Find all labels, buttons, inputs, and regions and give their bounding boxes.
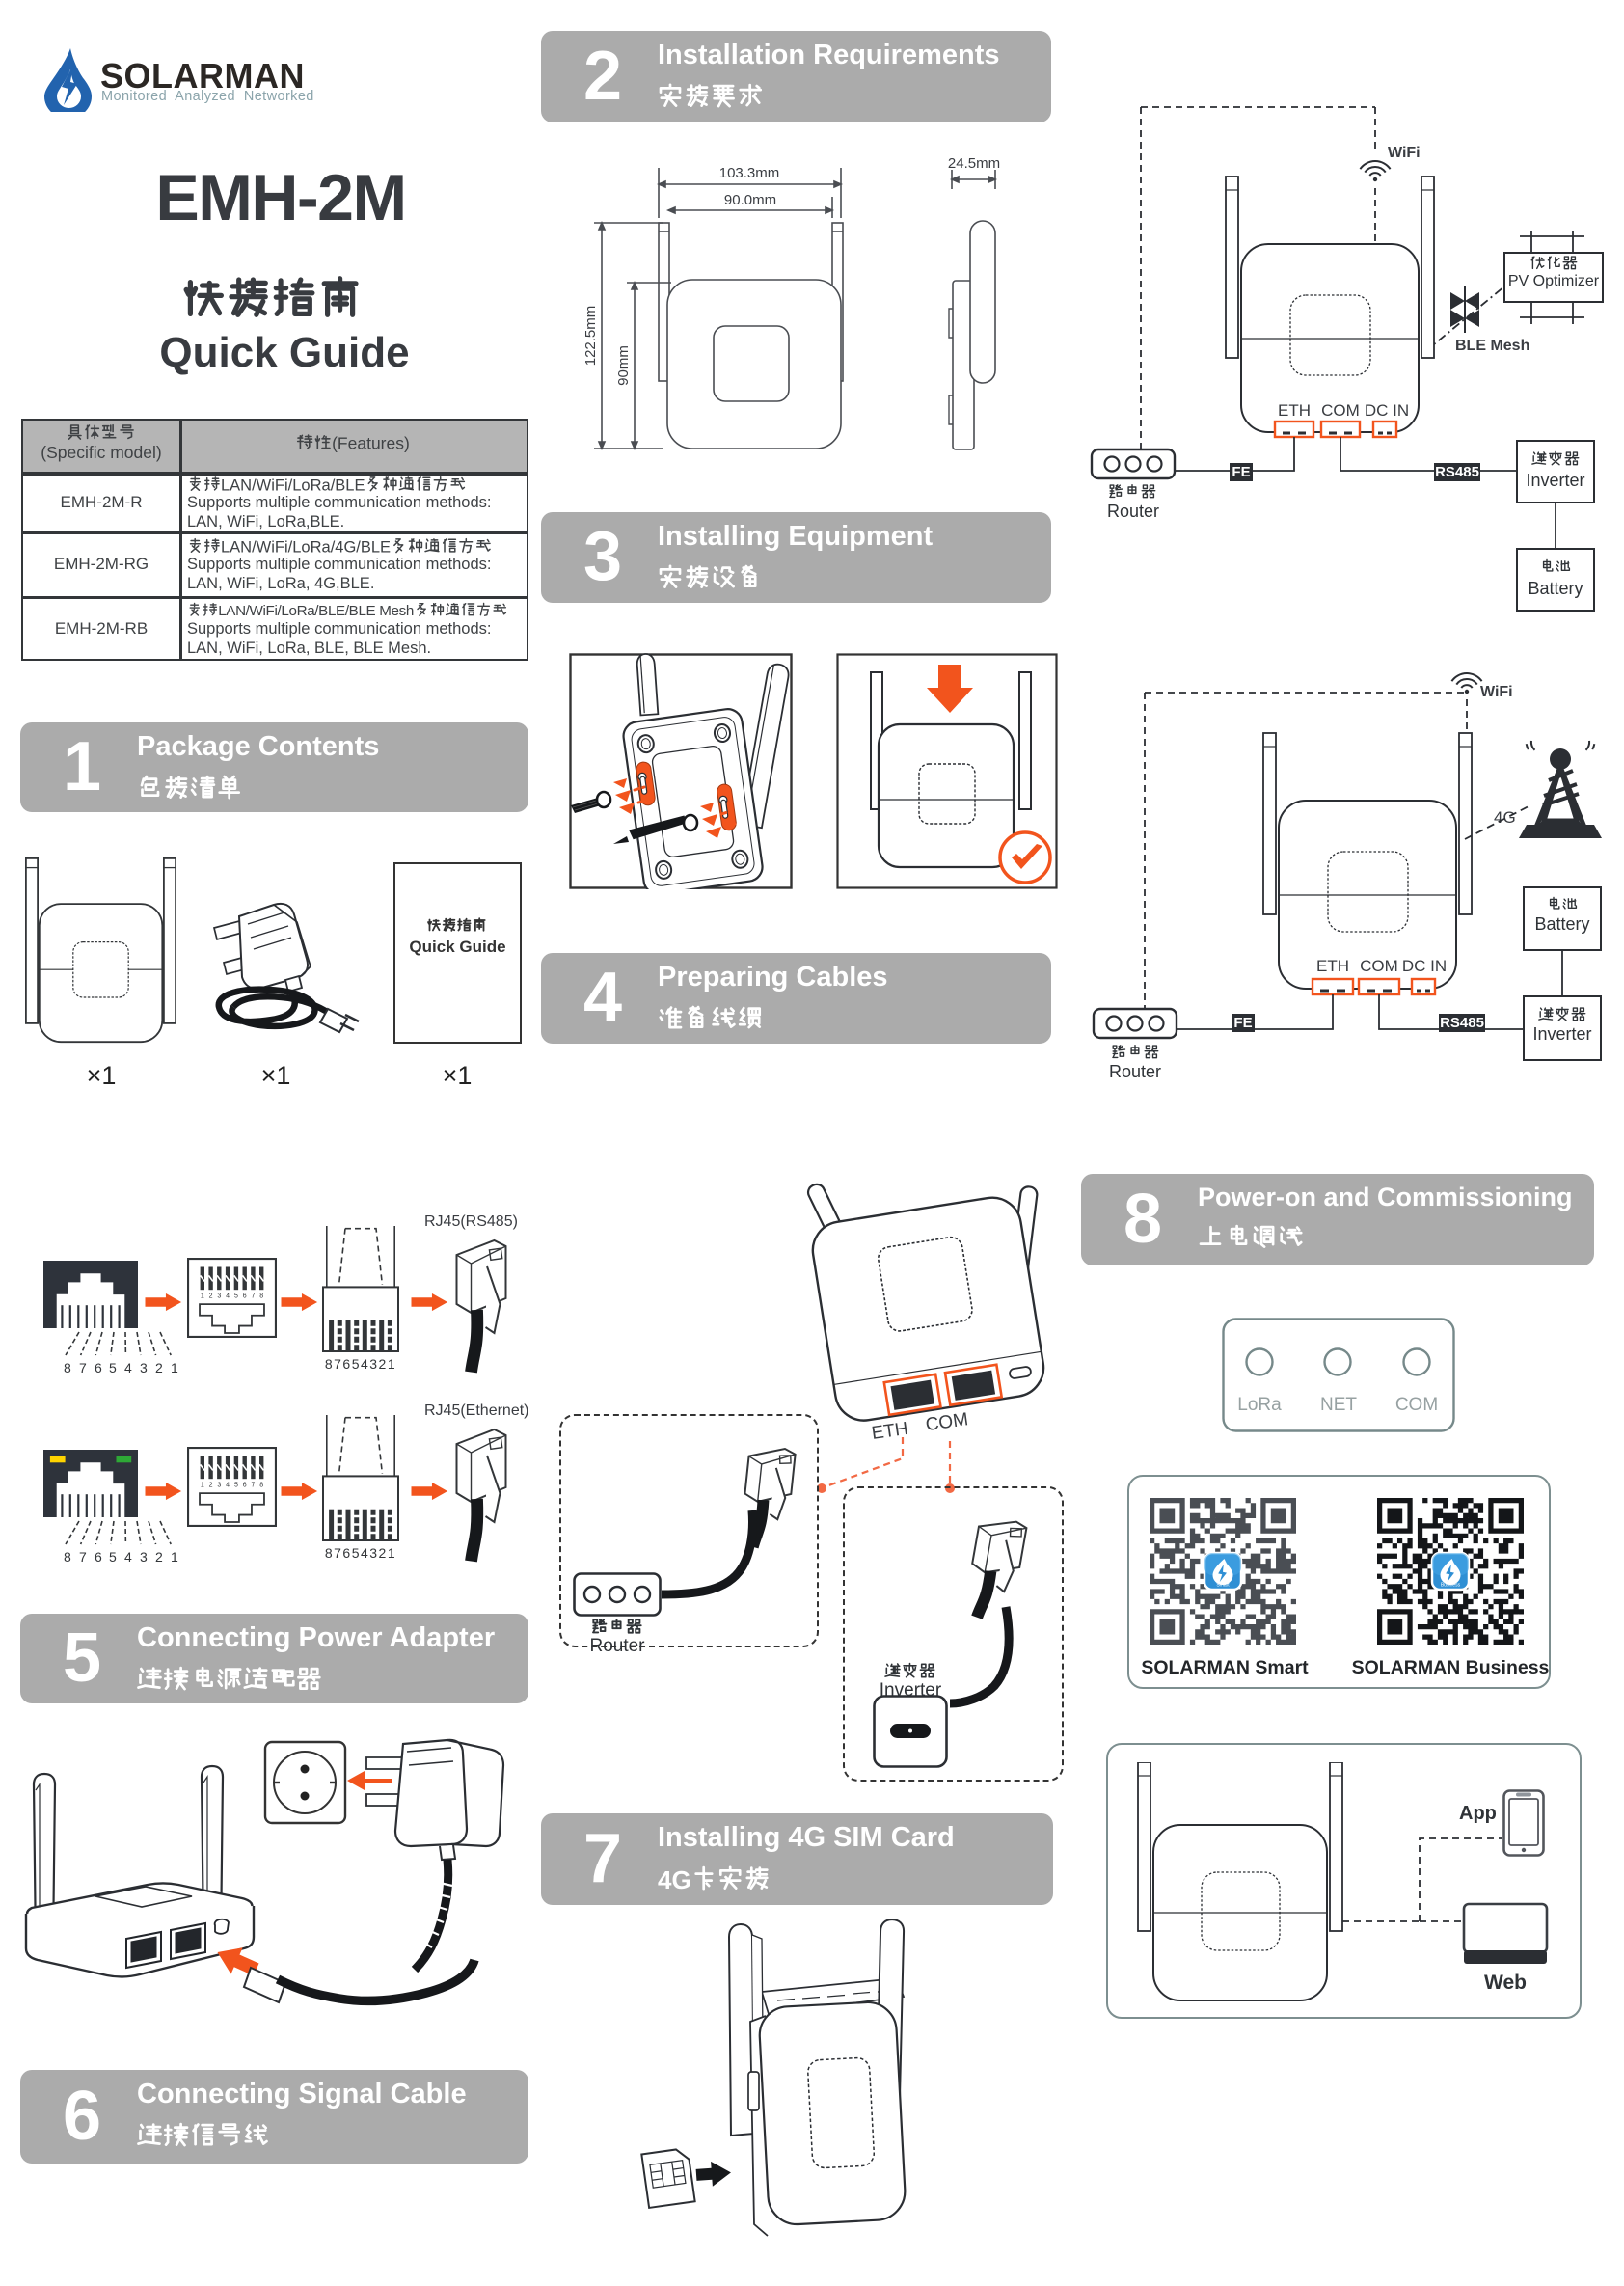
svg-text:DC IN: DC IN <box>1365 401 1409 420</box>
svg-text:ETH: ETH <box>1316 957 1349 975</box>
svg-text:LAN/WiFi/LoRa/4G/BLE: LAN/WiFi/LoRa/4G/BLE <box>221 538 391 556</box>
svg-text:122.5mm: 122.5mm <box>582 306 599 367</box>
svg-text:1: 1 <box>171 1549 178 1565</box>
svg-text:COM: COM <box>1321 401 1360 420</box>
svg-text:6: 6 <box>95 1549 102 1565</box>
svg-text:87654321: 87654321 <box>325 1545 396 1561</box>
svg-text:6: 6 <box>243 1483 247 1489</box>
svg-text:4: 4 <box>226 1293 230 1300</box>
svg-text:LAN/WiFi/LoRa/BLE: LAN/WiFi/LoRa/BLE <box>221 477 365 495</box>
svg-text:1: 1 <box>201 1483 204 1489</box>
svg-text:2: 2 <box>155 1360 163 1375</box>
svg-text:2: 2 <box>209 1293 213 1300</box>
svg-text:5: 5 <box>109 1549 117 1565</box>
svg-text:3: 3 <box>217 1483 221 1489</box>
svg-text:4: 4 <box>124 1360 132 1375</box>
svg-text:4: 4 <box>124 1549 132 1565</box>
svg-text:2: 2 <box>209 1483 213 1489</box>
svg-text:LAN/WiFi/LoRa/BLE/BLE Mesh: LAN/WiFi/LoRa/BLE/BLE Mesh <box>218 603 414 619</box>
svg-text:5: 5 <box>109 1360 117 1375</box>
svg-text:90mm: 90mm <box>615 345 632 386</box>
svg-text:7: 7 <box>251 1293 255 1300</box>
svg-text:4: 4 <box>226 1483 230 1489</box>
svg-text:BLE Mesh: BLE Mesh <box>1455 338 1529 354</box>
svg-text:Business: Business <box>1441 1583 1461 1589</box>
svg-text:6: 6 <box>243 1293 247 1300</box>
svg-text:8: 8 <box>259 1293 263 1300</box>
svg-text:8: 8 <box>64 1360 71 1375</box>
svg-text:2: 2 <box>155 1549 163 1565</box>
svg-text:3: 3 <box>217 1293 221 1300</box>
svg-text:5: 5 <box>234 1293 238 1300</box>
svg-text:COM: COM <box>1360 957 1398 975</box>
svg-text:COM: COM <box>1395 1395 1438 1415</box>
svg-text:NET: NET <box>1320 1395 1357 1415</box>
svg-text:1: 1 <box>201 1293 204 1300</box>
svg-text:LoRa: LoRa <box>1237 1395 1282 1415</box>
svg-text:WiFi: WiFi <box>1388 145 1421 161</box>
svg-text:90.0mm: 90.0mm <box>724 192 776 208</box>
svg-text:8: 8 <box>64 1549 71 1565</box>
svg-text:3: 3 <box>140 1549 148 1565</box>
svg-text:WiFi: WiFi <box>1480 684 1513 700</box>
svg-text:6: 6 <box>95 1360 102 1375</box>
svg-text:8: 8 <box>259 1483 263 1489</box>
svg-text:1: 1 <box>171 1360 178 1375</box>
svg-text:103.3mm: 103.3mm <box>719 165 780 181</box>
svg-text:7: 7 <box>251 1483 255 1489</box>
svg-text:5: 5 <box>234 1483 238 1489</box>
svg-text:(Features): (Features) <box>332 434 410 453</box>
svg-text:ETH: ETH <box>1278 401 1311 420</box>
svg-text:87654321: 87654321 <box>325 1356 396 1372</box>
svg-text:7: 7 <box>79 1360 87 1375</box>
svg-text:3: 3 <box>140 1360 148 1375</box>
svg-text:DC IN: DC IN <box>1402 957 1447 975</box>
svg-text:Smart: Smart <box>1216 1583 1230 1589</box>
svg-text:24.5mm: 24.5mm <box>948 155 1000 172</box>
svg-text:4G: 4G <box>1494 808 1516 827</box>
svg-text:4G: 4G <box>658 1865 691 1894</box>
svg-text:7: 7 <box>79 1549 87 1565</box>
